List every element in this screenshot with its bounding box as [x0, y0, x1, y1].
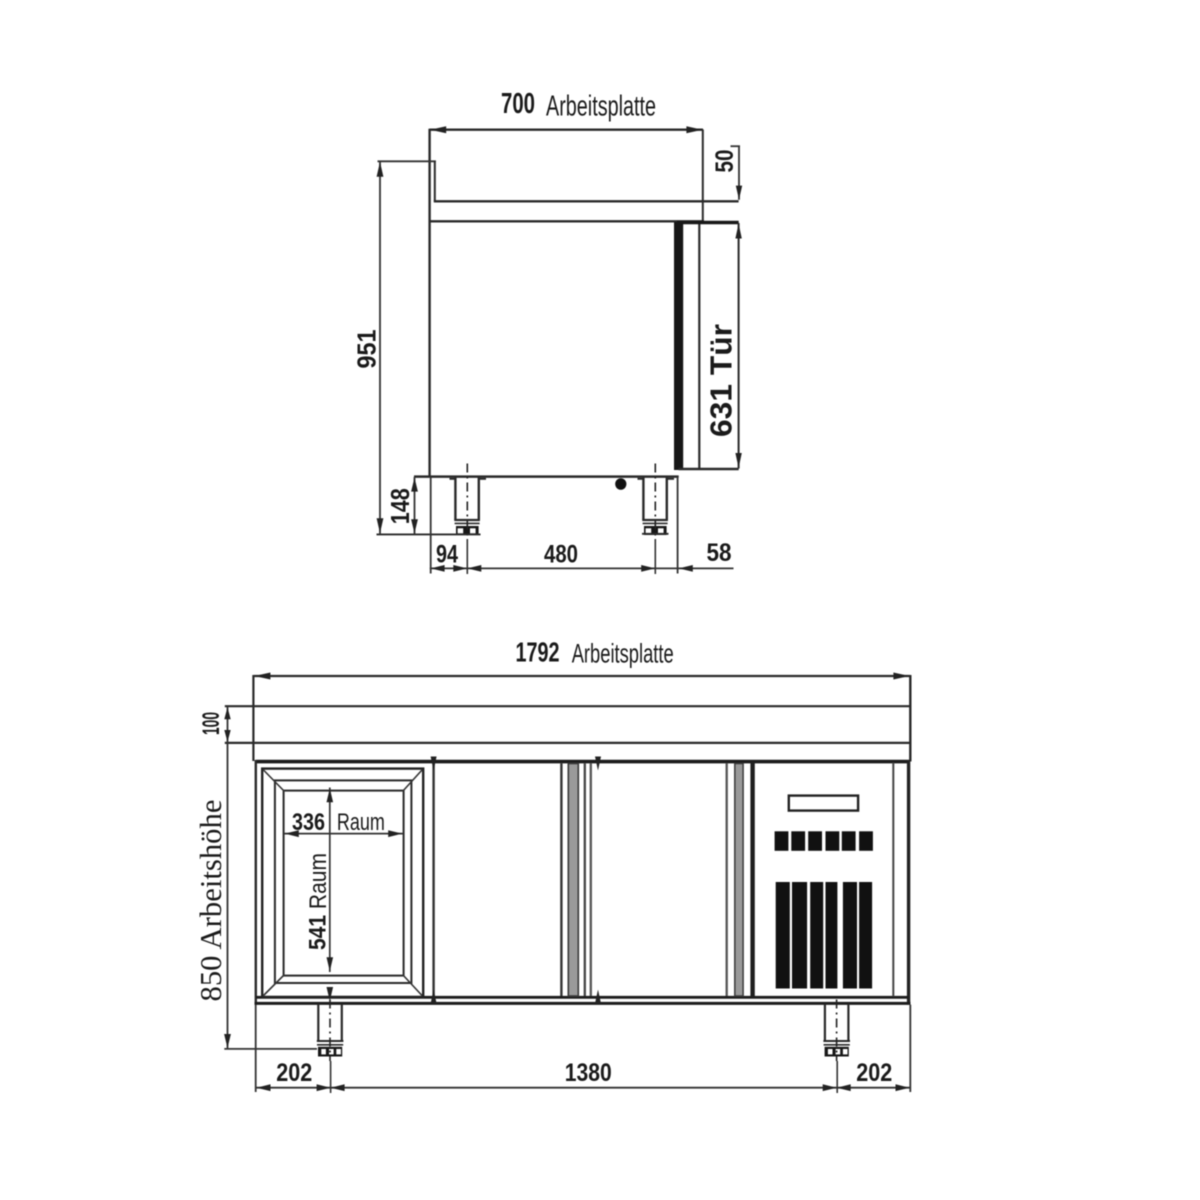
svg-text:1380: 1380 — [565, 1059, 612, 1087]
svg-text:850 Arbeitshöhe: 850 Arbeitshöhe — [193, 800, 228, 1002]
svg-text:336: 336 — [292, 809, 325, 836]
svg-text:94: 94 — [436, 541, 458, 569]
svg-text:58: 58 — [707, 539, 732, 567]
svg-text:541 Raum: 541 Raum — [305, 853, 332, 950]
svg-text:202: 202 — [276, 1059, 312, 1087]
svg-text:1792: 1792 — [516, 637, 560, 668]
svg-text:100: 100 — [198, 712, 225, 735]
svg-text:Arbeitsplatte: Arbeitsplatte — [546, 91, 656, 123]
svg-text:951: 951 — [351, 330, 381, 369]
svg-text:700: 700 — [501, 88, 535, 120]
svg-text:148: 148 — [385, 488, 415, 524]
svg-text:50: 50 — [711, 150, 739, 173]
svg-text:631 Tür: 631 Tür — [704, 324, 739, 437]
svg-text:Raum: Raum — [337, 809, 385, 836]
svg-text:480: 480 — [544, 541, 578, 569]
svg-text:Arbeitsplatte: Arbeitsplatte — [572, 639, 674, 669]
svg-text:202: 202 — [856, 1059, 892, 1087]
